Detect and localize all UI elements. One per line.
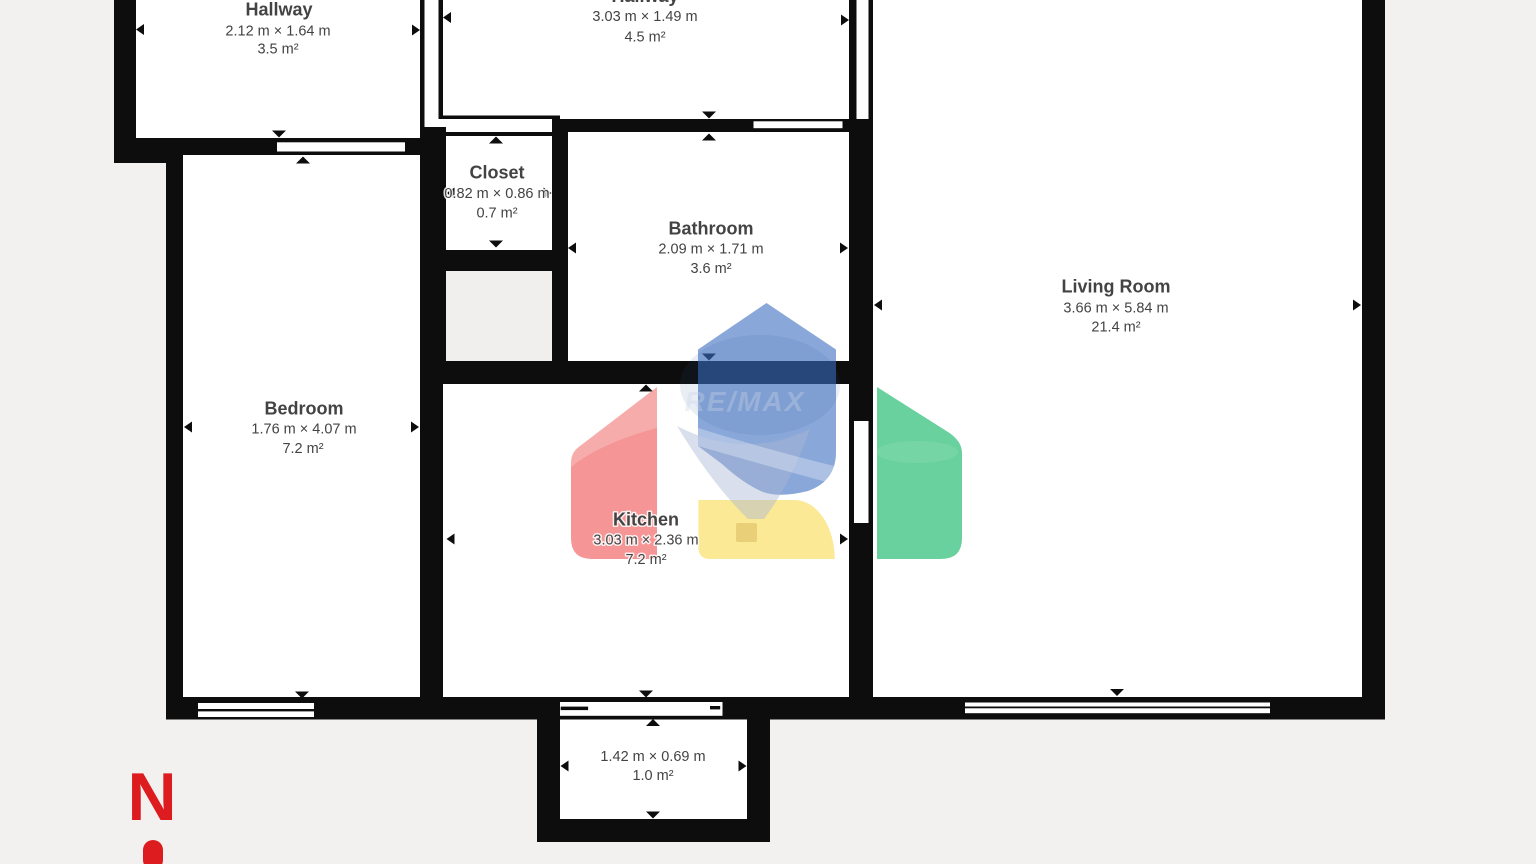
svg-text:0.82 m × 0.86 m: 0.82 m × 0.86 m [444,186,549,202]
svg-text:3.03 m × 2.36 m: 3.03 m × 2.36 m [593,533,698,549]
svg-text:3.6 m²: 3.6 m² [690,261,731,277]
svg-text:7.2 m²: 7.2 m² [625,552,666,568]
svg-text:Closet: Closet [469,163,524,183]
svg-text:2.12 m × 1.64 m: 2.12 m × 1.64 m [225,24,330,40]
svg-text:N: N [127,759,176,835]
svg-text:3.03 m × 1.49 m: 3.03 m × 1.49 m [592,9,697,25]
svg-text:1.76 m × 4.07 m: 1.76 m × 4.07 m [251,422,356,438]
svg-text:3.5 m²: 3.5 m² [257,42,298,58]
svg-text:1.42 m × 0.69 m: 1.42 m × 0.69 m [600,749,705,765]
svg-text:Hallway: Hallway [611,0,678,6]
svg-text:Bathroom: Bathroom [669,219,754,239]
svg-text:4.5 m²: 4.5 m² [624,30,665,46]
svg-text:7.2 m²: 7.2 m² [282,441,323,457]
svg-text:1.0 m²: 1.0 m² [632,768,673,784]
svg-text:0.7 m²: 0.7 m² [476,206,517,222]
svg-text:Kitchen: Kitchen [613,510,679,530]
svg-text:2.09 m × 1.71 m: 2.09 m × 1.71 m [658,242,763,258]
svg-text:3.66 m × 5.84 m: 3.66 m × 5.84 m [1063,301,1168,317]
svg-text:Bedroom: Bedroom [264,399,343,419]
svg-text:Living Room: Living Room [1062,277,1171,297]
svg-text:21.4 m²: 21.4 m² [1091,320,1140,336]
svg-text:Hallway: Hallway [245,0,312,20]
svg-text:RE/MAX: RE/MAX [685,386,806,417]
